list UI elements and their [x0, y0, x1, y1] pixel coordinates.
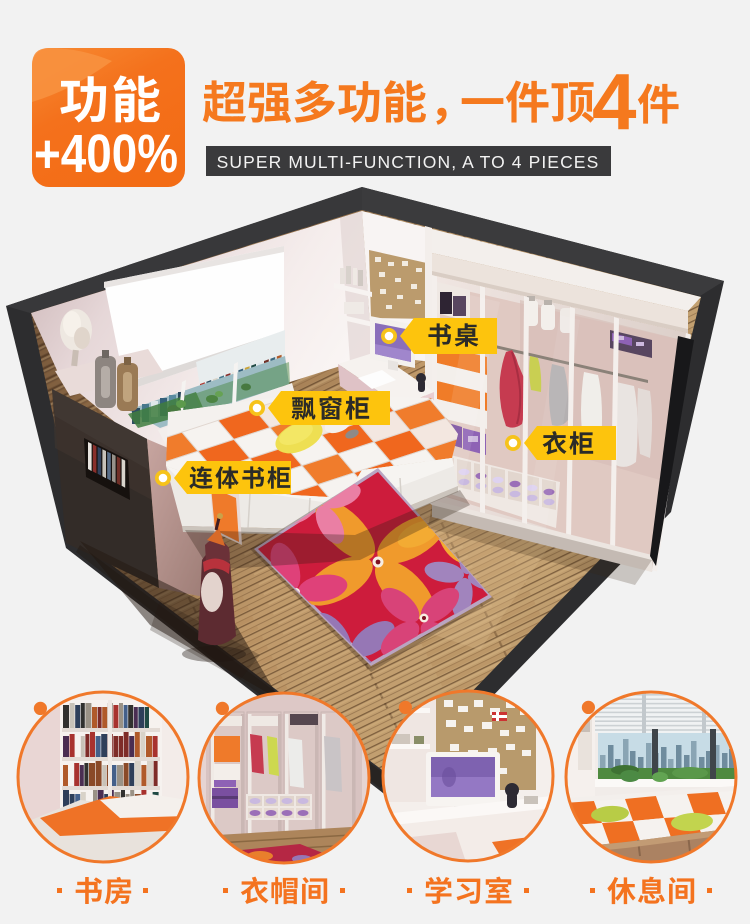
svg-text:SUPER MULTI-FUNCTION, A TO 4 P: SUPER MULTI-FUNCTION, A TO 4 PIECES [217, 152, 600, 172]
svg-text:4: 4 [592, 57, 637, 146]
svg-text:+400%: +400% [34, 124, 178, 184]
